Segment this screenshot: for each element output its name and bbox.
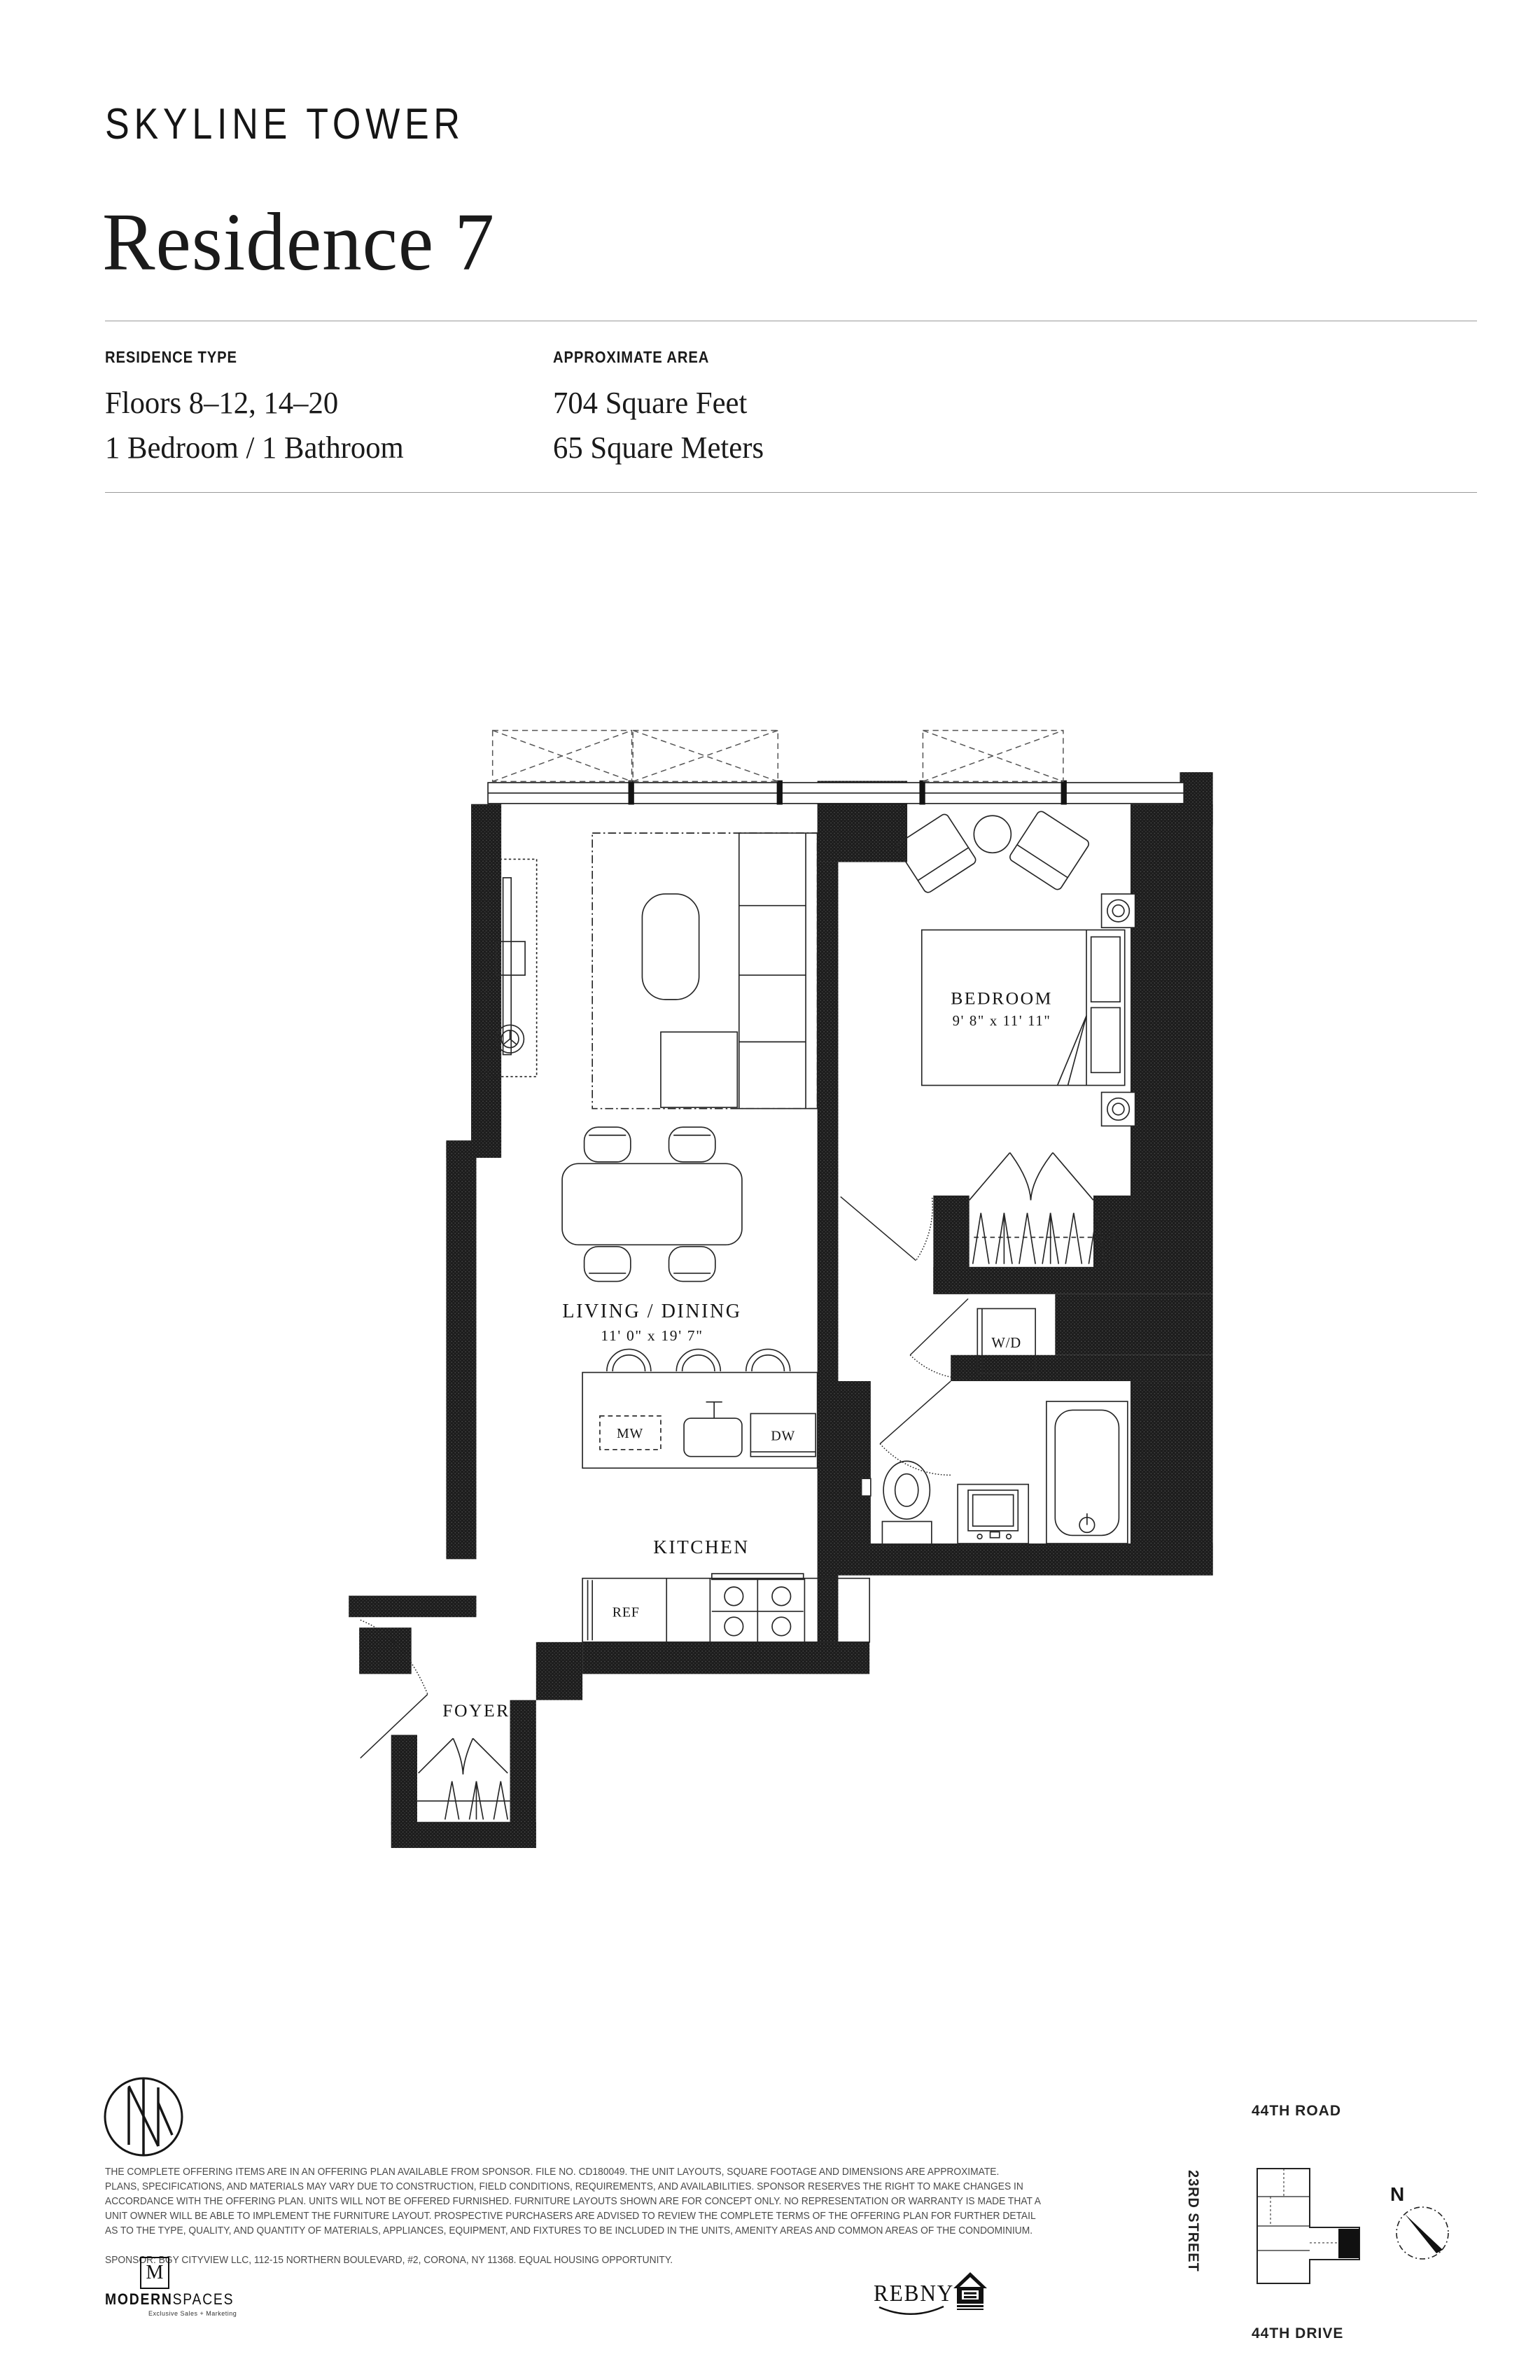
round-side-table: [974, 815, 1011, 853]
street-label-top: 44TH ROAD: [1252, 2103, 1341, 2120]
bedroom-label: BEDROOM: [951, 988, 1053, 1009]
rebny-logo: REBNY: [874, 2281, 954, 2307]
bath-fixture-icon: [862, 1478, 871, 1496]
compass-needle: [1405, 2214, 1443, 2253]
legal-line: ACCORDANCE WITH THE OFFERING PLAN. UNITS…: [105, 2194, 1041, 2208]
sofa: [739, 833, 818, 1109]
kitchen-island: [582, 1349, 818, 1468]
living-dining-label: LIVING / DINING: [562, 1301, 741, 1322]
area-sqm: 65 Square Meters: [553, 426, 764, 470]
building-footprint-map: [1256, 2164, 1365, 2290]
area-rug: [592, 833, 817, 1109]
skyline-monogram-logo: [102, 2075, 185, 2159]
foyer-label: FOYER: [442, 1700, 510, 1721]
bathtub: [1046, 1401, 1128, 1543]
compass-north-label: N: [1390, 2183, 1404, 2205]
legal-line: UNIT OWNER WILL BE ABLE TO IMPLEMENT THE…: [105, 2208, 1041, 2223]
divider-top: [105, 321, 1477, 321]
accent-chair: [1008, 810, 1090, 891]
area-sqft: 704 Square Feet: [553, 381, 764, 426]
vanity-sink: [958, 1484, 1028, 1543]
sponsor-line: SPONSOR: BGY CITYVIEW LLC, 112-15 NORTHE…: [105, 2254, 673, 2266]
residence-bed-bath: 1 Bedroom / 1 Bathroom: [105, 426, 404, 470]
floor-plan: LIVING / DINING 11' 0" x 19' 7" BEDROOM …: [336, 714, 1232, 1876]
dishwasher-label: DW: [771, 1429, 795, 1444]
legal-line: PLANS, SPECIFICATIONS, AND MATERIALS MAY…: [105, 2179, 1041, 2194]
living-dining-dims: 11' 0" x 19' 7": [601, 1327, 703, 1344]
balcony-vent-bays: [493, 730, 1063, 781]
modernspaces-logo: MODERNSPACES: [105, 2290, 234, 2309]
residence-type-label: RESIDENCE TYPE: [105, 348, 376, 367]
sprinkler-icon: [1102, 894, 1135, 927]
approximate-area-label: APPROXIMATE AREA: [553, 348, 744, 367]
kitchen-label: KITCHEN: [653, 1536, 749, 1557]
divider-info: [105, 492, 1477, 493]
ottoman: [661, 1032, 737, 1107]
coffee-table: [642, 894, 699, 1000]
residence-floors: Floors 8–12, 14–20: [105, 381, 404, 426]
street-label-left: 23RD STREET: [1184, 2170, 1201, 2272]
modernspaces-monogram: M: [140, 2257, 169, 2289]
microwave-label: MW: [617, 1426, 643, 1441]
dining-set: [562, 1127, 742, 1281]
equal-housing-icon: [953, 2272, 987, 2311]
bathroom-door: [880, 1381, 952, 1475]
unit-location-marker: [1338, 2229, 1359, 2258]
residence-type-block: RESIDENCE TYPE Floors 8–12, 14–20 1 Bedr…: [105, 348, 413, 470]
bedroom-dims: 9' 8" x 11' 11": [953, 1014, 1051, 1029]
bedroom-door: [841, 1197, 932, 1261]
toilet: [882, 1461, 931, 1544]
modernspaces-tagline: Exclusive Sales + Marketing: [148, 2310, 237, 2317]
rebny-swash: [876, 2304, 946, 2318]
page-title: Residence 7: [102, 195, 495, 290]
sprinkler-icon: [1102, 1092, 1135, 1126]
range: [712, 1574, 804, 1642]
street-label-bottom: 44TH DRIVE: [1252, 2325, 1343, 2342]
floorplan-sheet: { "header": { "brand": "SKYLINE TOWER", …: [0, 0, 1540, 2380]
building-brand: SKYLINE TOWER: [105, 99, 465, 149]
foyer-closet: [417, 1738, 510, 1819]
window-band: [488, 780, 1184, 805]
accent-chair: [895, 813, 977, 894]
approximate-area-block: APPROXIMATE AREA 704 Square Feet 65 Squa…: [553, 348, 770, 470]
washer-dryer-label: W/D: [991, 1336, 1021, 1351]
legal-block: THE COMPLETE OFFERING ITEMS ARE IN AN OF…: [105, 2164, 1122, 2238]
modernspaces-m: M: [146, 2262, 164, 2284]
legal-line: AS TO THE TYPE, QUALITY, AND QUANTITY OF…: [105, 2223, 1041, 2238]
compass: N: [1380, 2178, 1457, 2269]
refrigerator-label: REF: [612, 1604, 640, 1620]
legal-line: THE COMPLETE OFFERING ITEMS ARE IN AN OF…: [105, 2164, 1041, 2179]
walls: [349, 772, 1212, 1848]
modernspaces-light: SPACES: [173, 2290, 234, 2308]
modernspaces-bold: MODERN: [105, 2290, 173, 2308]
